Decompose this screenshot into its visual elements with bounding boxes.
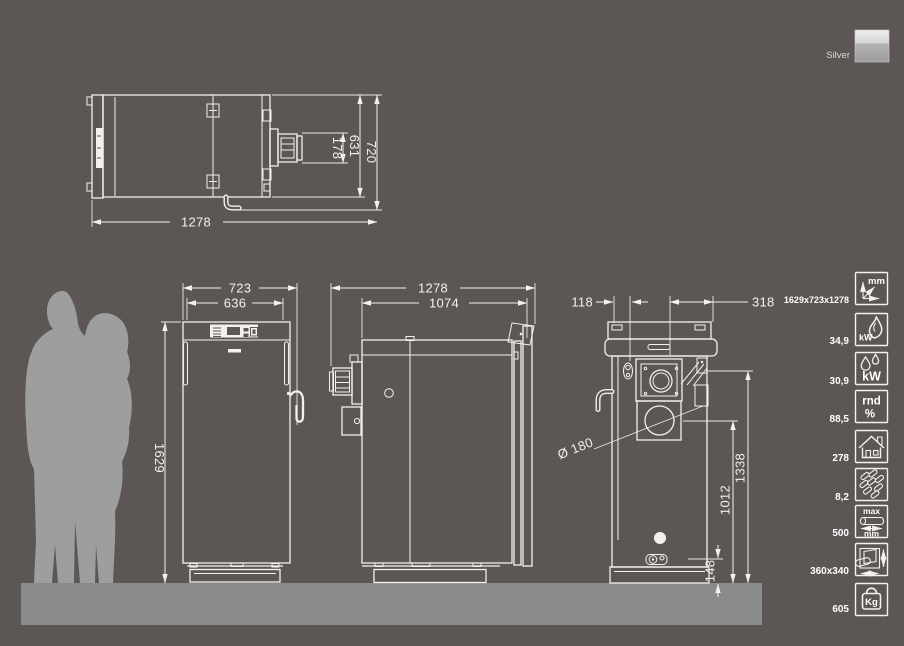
dim-label: 178 xyxy=(330,137,345,160)
spec-value-max-log: 500 xyxy=(832,528,849,539)
technical-drawing: 720 631 178 1278 xyxy=(0,0,904,646)
svg-text:mm: mm xyxy=(868,276,885,287)
svg-text:kW: kW xyxy=(859,333,873,343)
svg-text:rnd: rnd xyxy=(862,396,881,408)
spec-value-door-opening: 360x340 xyxy=(810,566,849,577)
svg-text:max: max xyxy=(863,506,880,516)
dim-label: 1338 xyxy=(733,453,748,483)
dim-label: 1278 xyxy=(181,215,211,230)
dim-label: 118 xyxy=(571,295,593,310)
dim-label: 720 xyxy=(364,141,379,164)
color-option-label: Silver xyxy=(826,50,850,61)
front-view-control-panel xyxy=(210,325,258,338)
svg-text:kW: kW xyxy=(862,370,881,384)
dim-label: 631 xyxy=(347,135,362,158)
spec-value-dimensions: 1629x723x1278 xyxy=(784,295,849,305)
front-view-vent-slot xyxy=(228,349,241,353)
dim-label: 1012 xyxy=(718,485,733,515)
svg-text:%: % xyxy=(865,409,875,421)
background xyxy=(0,0,904,646)
spec-value-heat-output: 34,9 xyxy=(830,336,850,347)
dim-label: 318 xyxy=(752,295,775,310)
dim-label: 1629 xyxy=(152,443,167,473)
silver-swatch xyxy=(855,30,889,62)
display xyxy=(227,327,240,335)
svg-text:Kg: Kg xyxy=(865,597,878,608)
spec-value-water-output: 30,9 xyxy=(830,376,850,387)
spec-value-weight: 605 xyxy=(832,604,849,615)
dim-label: 723 xyxy=(229,281,252,296)
svg-text:mm: mm xyxy=(864,529,880,539)
dim-label: 636 xyxy=(224,296,247,311)
dim-label: 1074 xyxy=(429,296,459,311)
dim-label: 1278 xyxy=(418,281,448,296)
dim-label: 148 xyxy=(703,560,718,583)
floor xyxy=(21,583,762,625)
spec-value-consumption: 8,2 xyxy=(835,492,849,503)
rear-view-drain-port xyxy=(654,532,666,544)
spec-value-efficiency: 88,5 xyxy=(830,414,850,425)
spec-value-heated-area: 278 xyxy=(832,453,849,464)
